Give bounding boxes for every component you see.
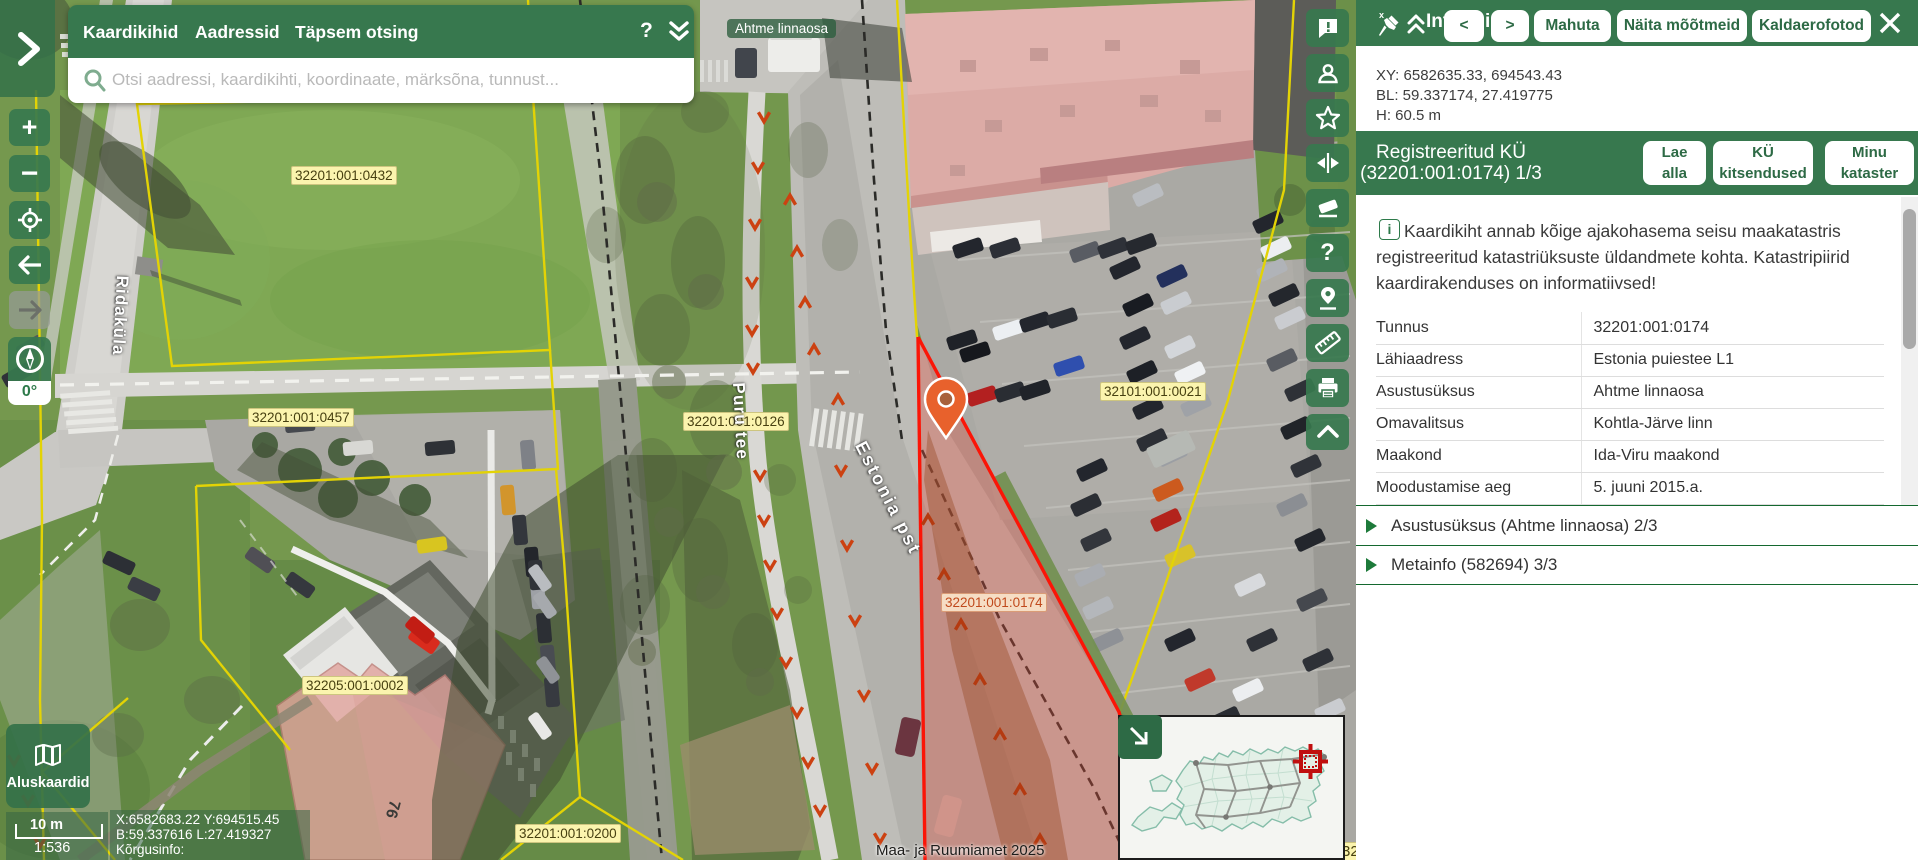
- svg-text:x: x: [1379, 11, 1384, 20]
